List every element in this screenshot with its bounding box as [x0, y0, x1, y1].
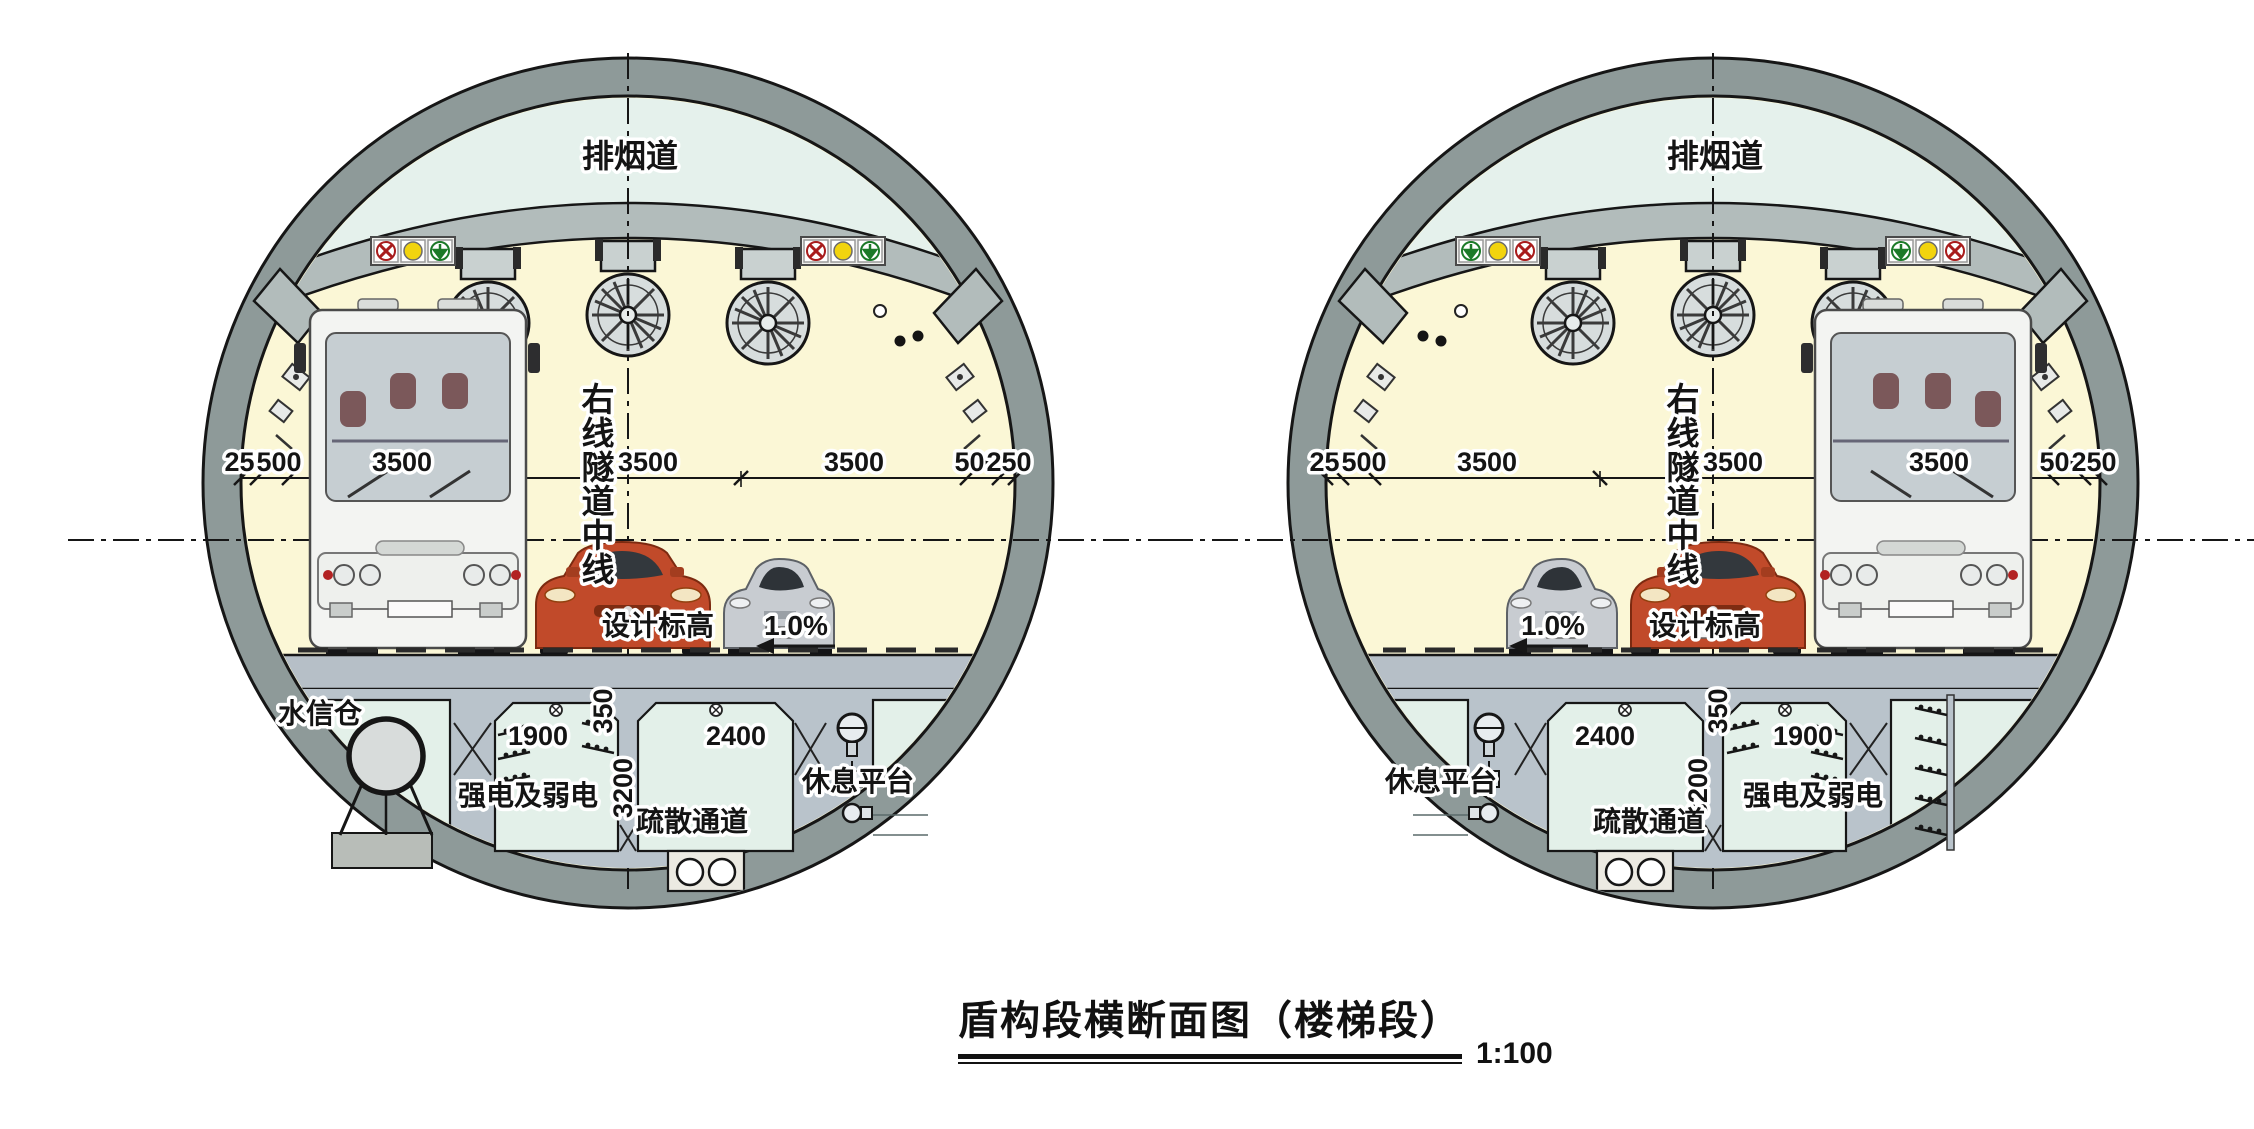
left-tunnel: 排烟道 右 线 隧 道 中 线 250 500 3500 3500 3500 5… [68, 53, 1188, 911]
deck-thickness-dim: 350 [588, 688, 618, 733]
svg-text:线: 线 [1667, 551, 1700, 588]
svg-text:250: 250 [986, 447, 1031, 477]
svg-text:500: 500 [256, 447, 301, 477]
svg-text:250: 250 [2071, 447, 2116, 477]
power-width-dim: 1900 [1773, 721, 1833, 751]
tunnel-centerline-label: 右 线 隧 道 中 线 [582, 381, 615, 588]
svg-text:线: 线 [582, 415, 615, 452]
tunnel-cross-section-svg: 排烟道 右 线 隧 道 中 线 250 500 3500 3500 3500 5… [0, 0, 2254, 1129]
design-level-label: 设计标高 [1649, 610, 1761, 641]
svg-text:道: 道 [1667, 483, 1700, 520]
svg-text:右: 右 [582, 381, 615, 418]
svg-text:线: 线 [1667, 415, 1700, 452]
power-room-label: 强电及弱电 [458, 780, 598, 811]
evac-height-dim: 3200 [608, 758, 638, 818]
slope-label: 1.0% [764, 610, 828, 641]
water-info-bay-label: 水信仓 [278, 698, 363, 729]
svg-text:隧: 隧 [582, 449, 615, 486]
drawing-scale: 1:100 [1476, 1037, 1553, 1071]
tunnel-centerline-label: 右 线 隧 道 中 线 [1667, 381, 1700, 588]
deck-thickness-dim: 350 [1703, 688, 1733, 733]
svg-text:500: 500 [1341, 447, 1386, 477]
svg-text:3500: 3500 [1703, 447, 1763, 477]
smoke-duct-label: 排烟道 [582, 138, 678, 174]
design-level-label: 设计标高 [602, 610, 714, 641]
svg-text:3500: 3500 [1909, 447, 1969, 477]
svg-text:道: 道 [582, 483, 615, 520]
evac-width-dim: 2400 [1575, 721, 1635, 751]
svg-text:中: 中 [582, 517, 615, 554]
drawing-page: 排烟道 右 线 隧 道 中 线 250 500 3500 3500 3500 5… [0, 0, 2254, 1129]
svg-text:右: 右 [1667, 381, 1700, 418]
svg-text:中: 中 [1667, 517, 1700, 554]
rest-platform-label: 休息平台 [801, 765, 914, 797]
evac-passage-label: 疏散通道 [1593, 805, 1705, 837]
svg-text:3500: 3500 [1457, 447, 1517, 477]
power-room-label: 强电及弱电 [1743, 780, 1883, 811]
svg-text:3500: 3500 [618, 447, 678, 477]
drawing-title-block: 盾构段横断面图（楼梯段） 1:100 [958, 988, 1553, 1059]
evac-passage-label: 疏散通道 [636, 805, 748, 837]
svg-text:3500: 3500 [372, 447, 432, 477]
rest-platform-label: 休息平台 [1384, 765, 1497, 797]
svg-text:线: 线 [582, 551, 615, 588]
svg-text:隧: 隧 [1667, 449, 1700, 486]
drawing-title: 盾构段横断面图（楼梯段） [958, 999, 1462, 1043]
title-underline: 盾构段横断面图（楼梯段） [958, 988, 1462, 1059]
slope-label: 1.0% [1521, 610, 1585, 641]
smoke-duct-label: 排烟道 [1667, 138, 1763, 174]
svg-text:3500: 3500 [824, 447, 884, 477]
right-tunnel: 排烟道 右 线 隧 道 中 线 250 500 3500 3500 3500 5… [1153, 53, 2254, 911]
evac-width-dim: 2400 [706, 721, 766, 751]
power-width-dim: 1900 [508, 721, 568, 751]
